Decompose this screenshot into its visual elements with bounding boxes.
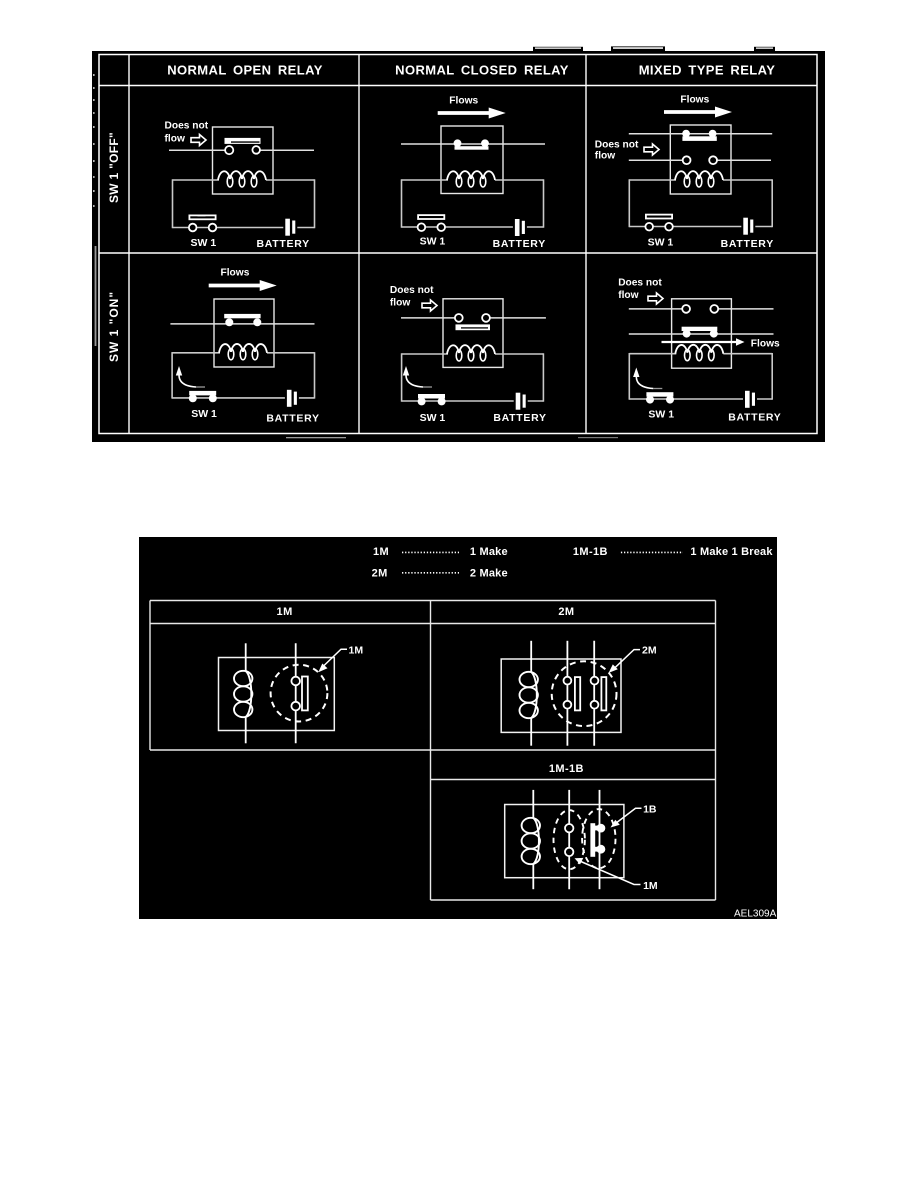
svg-text:MIXED TYPE RELAY: MIXED TYPE RELAY <box>639 63 776 78</box>
svg-text:Flows: Flows <box>449 95 478 106</box>
svg-text:NORMAL CLOSED RELAY: NORMAL CLOSED RELAY <box>395 63 569 78</box>
svg-text:BATTERY: BATTERY <box>493 238 546 250</box>
svg-text:flow: flow <box>390 298 410 309</box>
svg-text:SW 1 "OFF": SW 1 "OFF" <box>107 132 121 203</box>
svg-text:2M: 2M <box>372 568 388 580</box>
svg-text:BATTERY: BATTERY <box>257 238 310 250</box>
svg-text:BATTERY: BATTERY <box>493 412 546 424</box>
svg-text:flow: flow <box>618 290 638 301</box>
svg-text:Flows: Flows <box>680 94 709 105</box>
svg-text:NORMAL OPEN RELAY: NORMAL OPEN RELAY <box>167 63 323 78</box>
svg-text:Flows: Flows <box>751 339 780 350</box>
svg-text:1 Make 1 Break: 1 Make 1 Break <box>690 546 773 558</box>
svg-text:1M-1B: 1M-1B <box>573 546 608 558</box>
svg-text:SW 1: SW 1 <box>191 408 217 420</box>
svg-text:1M: 1M <box>643 880 658 892</box>
svg-text:2M: 2M <box>642 645 657 657</box>
svg-text:1M: 1M <box>349 645 364 657</box>
svg-text:SW 1: SW 1 <box>420 236 446 248</box>
svg-text:1M-1B: 1M-1B <box>549 763 584 775</box>
svg-text:SW 1 "ON": SW 1 "ON" <box>107 291 121 362</box>
svg-text:Flows: Flows <box>221 268 250 279</box>
svg-text:Does not: Does not <box>165 121 209 132</box>
svg-text:2M: 2M <box>558 606 574 618</box>
svg-text:SW 1: SW 1 <box>191 237 217 249</box>
svg-text:1B: 1B <box>643 804 657 816</box>
svg-text:AEL309A: AEL309A <box>734 909 777 920</box>
svg-text:1M: 1M <box>277 606 293 618</box>
svg-text:SW 1: SW 1 <box>648 409 674 421</box>
svg-text:Does not: Does not <box>595 139 639 150</box>
svg-text:flow: flow <box>595 151 615 162</box>
svg-text:1M: 1M <box>373 546 389 558</box>
svg-text:BATTERY: BATTERY <box>266 413 319 425</box>
svg-text:Does not: Does not <box>618 278 662 289</box>
svg-text:1 Make: 1 Make <box>470 546 508 558</box>
svg-text:BATTERY: BATTERY <box>721 238 774 250</box>
svg-text:Does not: Does not <box>390 285 434 296</box>
svg-text:2 Make: 2 Make <box>470 568 508 580</box>
svg-text:flow: flow <box>165 134 185 145</box>
svg-text:SW 1: SW 1 <box>420 412 446 424</box>
svg-text:SW 1: SW 1 <box>648 237 674 249</box>
svg-text:BATTERY: BATTERY <box>728 412 781 424</box>
